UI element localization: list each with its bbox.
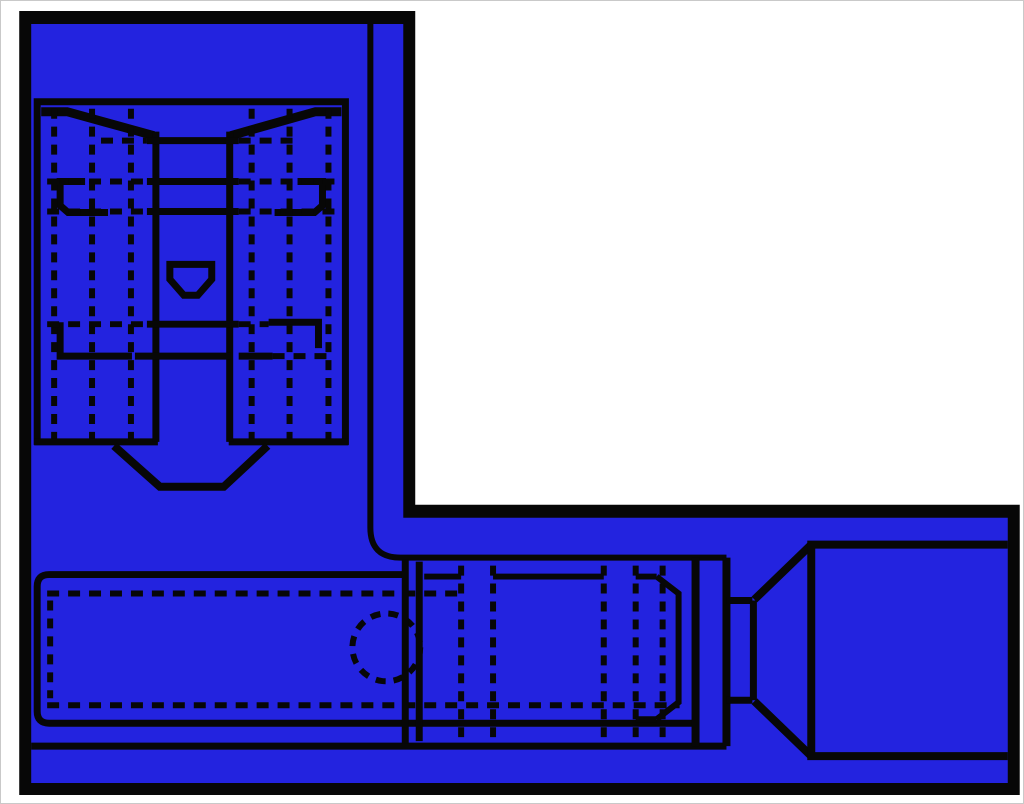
terminal-technical-drawing <box>1 1 1023 803</box>
inner-seam-line <box>370 24 726 558</box>
drawing-canvas <box>0 0 1024 804</box>
